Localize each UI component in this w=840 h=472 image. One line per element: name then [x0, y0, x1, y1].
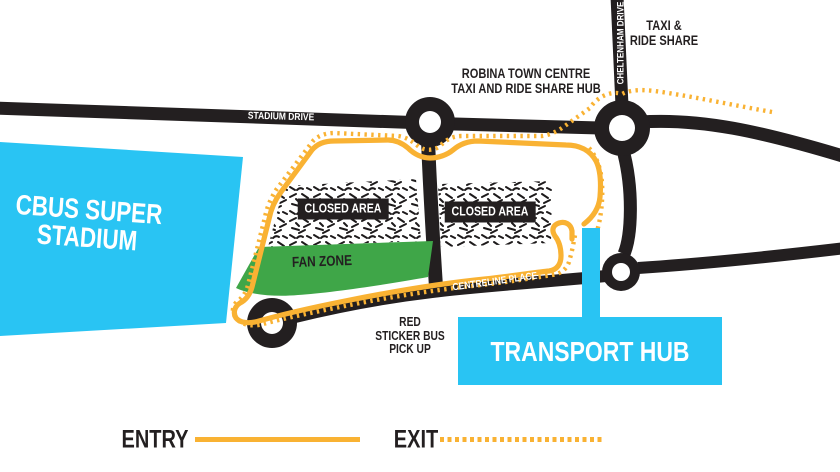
legend-entry-line — [195, 437, 360, 442]
roundabout-cheltenham — [594, 100, 650, 156]
robina-hub-label: ROBINA TOWN CENTRE TAXI AND RIDE SHARE H… — [451, 66, 600, 96]
stadium-name: CBUS SUPER STADIUM — [13, 191, 163, 257]
transport-hub-label: TRANSPORT HUB — [491, 336, 690, 368]
stadium-drive-label: STADIUM DRIVE — [248, 111, 315, 124]
roundabout-transport-hub — [602, 253, 640, 291]
venue-map: CBUS SUPER STADIUM STADIUM DRIVE CHELTEN… — [0, 0, 840, 472]
connector-road — [624, 154, 630, 254]
legend-exit-label: EXIT — [394, 426, 438, 455]
closed-area-right-label: CLOSED AREA — [445, 202, 536, 223]
legend-entry-label: ENTRY — [121, 426, 188, 455]
cheltenham-drive-label: CHELTENHAM DRIVE — [616, 2, 627, 85]
legend-exit-line — [440, 437, 604, 442]
ring-road-lower — [638, 248, 840, 268]
transport-hub-stalk — [582, 228, 600, 323]
closed-area-left-label: CLOSED AREA — [298, 199, 389, 220]
fan-zone-label: FAN ZONE — [292, 253, 353, 271]
ring-road-upper — [640, 121, 840, 157]
red-sticker-bus-label: RED STICKER BUS PICK UP — [375, 316, 444, 357]
taxi-ride-share-label: TAXI & RIDE SHARE — [630, 18, 698, 48]
